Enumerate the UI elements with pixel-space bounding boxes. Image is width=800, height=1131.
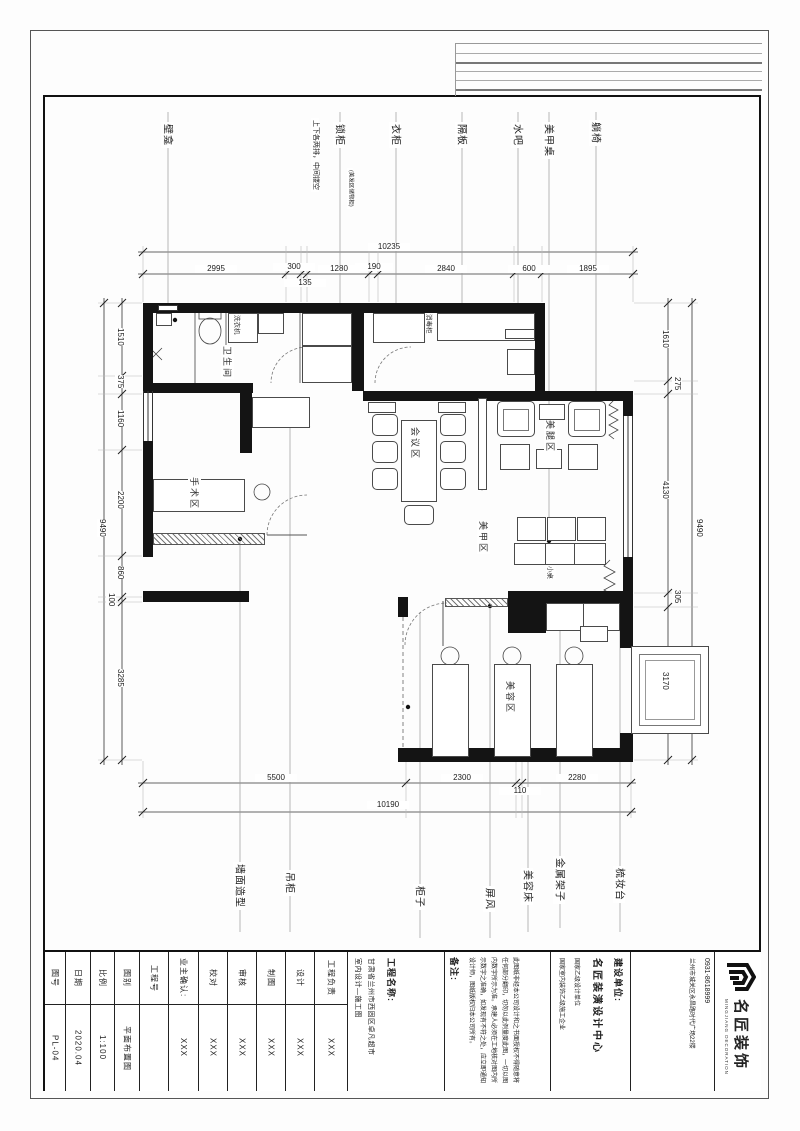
chair — [372, 414, 398, 436]
dim-top-seg: 135 — [284, 279, 326, 287]
screen-partition — [445, 598, 508, 607]
side-table — [539, 404, 565, 420]
wall — [508, 591, 546, 633]
field-label: 图号 — [50, 969, 61, 987]
window — [143, 391, 153, 441]
dim-bottom-overall: 10190 — [367, 801, 409, 809]
dim-right-overall: 9490 — [694, 519, 704, 537]
dim-top-seg: 2995 — [195, 265, 237, 273]
armchair-cushion — [503, 409, 529, 431]
logo-section: MINGJIANG DECORATION 名匠装饰 — [714, 952, 761, 1091]
field-label: 日期 — [73, 969, 84, 987]
window — [623, 416, 633, 557]
dim-left-seg: 1160 — [115, 410, 125, 427]
callout-locker-subnote: (美发区储物柜) — [347, 168, 353, 209]
personnel-draft: 制图 XXX — [256, 952, 285, 1091]
room-label-meeting: 会议区 — [409, 427, 422, 460]
project-name-label: 工程名称: — [385, 958, 398, 1085]
personnel-design: 设计 XXX — [285, 952, 314, 1091]
dim-right-seg: 275 — [672, 377, 682, 390]
logo-text-group: MINGJIANG DECORATION 名匠装饰 — [724, 999, 752, 1075]
owner-confirm: 业主确认: XXX — [168, 952, 198, 1091]
dim-left-seg: 100 — [106, 593, 116, 606]
fixture-label-small-table: 小桌 — [546, 566, 556, 579]
ottoman — [568, 444, 598, 470]
personnel-value: XXX — [296, 1038, 305, 1057]
callout-cabinet: 柜子 — [413, 884, 425, 910]
nail-station — [547, 517, 576, 541]
wall — [398, 597, 408, 617]
drawing-sheet: { "dims": { "top": {"overall": "10235", … — [0, 0, 800, 1131]
dim-left-seg: 860 — [115, 566, 125, 579]
personnel-label: 制图 — [266, 969, 277, 987]
fixture-label-sterilizer: 消毒柜 — [425, 314, 435, 334]
dim-left-seg: 3285 — [115, 669, 125, 687]
client-name: 名匠装潢设计中心 — [591, 958, 606, 1085]
callout-wall-feature: 墙面造型 — [233, 862, 245, 910]
dim-left-seg: 2200 — [115, 491, 125, 509]
chair — [372, 468, 398, 490]
client-section: 国家室内装饰乙级施工企业 国家乙级设计单位 名匠装潢设计中心 建设单位: — [550, 952, 630, 1091]
client-label: 建设单位: — [612, 958, 625, 1085]
personnel-label: 工程负责 — [326, 960, 337, 996]
locker-cabinet-upper — [302, 313, 352, 346]
callout-screen: 屏风 — [483, 886, 495, 912]
dim-bottom-seg: 2300 — [441, 774, 483, 782]
personnel-proofread: 校对 XXX — [198, 952, 227, 1091]
personnel-lead: 工程负责 XXX — [314, 952, 347, 1091]
dim-right-seg: 4130 — [660, 481, 670, 499]
personnel-label: 设计 — [295, 969, 306, 987]
personnel-value: XXX — [238, 1038, 247, 1057]
dim-bottom-seg: 2280 — [556, 774, 598, 782]
cabinet-drawer — [580, 626, 608, 642]
wall — [143, 303, 545, 313]
dim-right-seg: 1610 — [660, 330, 670, 348]
wall — [535, 303, 545, 391]
dim-top-seg: 600 — [508, 265, 550, 273]
locker-cabinet-lower — [302, 346, 352, 383]
callout-nail-table: 美甲桌 — [542, 122, 554, 159]
contact-section: 兰州市城关区永昌路时代广场22楼 0931-8618999 — [630, 952, 714, 1091]
wall — [620, 591, 633, 648]
field-project-no: 工程号 — [139, 952, 168, 1091]
dim-left-seg: 1510 — [115, 328, 125, 346]
nail-station — [577, 517, 606, 541]
field-label: 比例 — [97, 969, 108, 987]
room-label-surgery: 手术区 — [188, 477, 201, 510]
callout-niche: 壁龛 — [161, 122, 173, 148]
dim-right-seg: 305 — [672, 590, 682, 603]
door-leaves — [267, 535, 443, 646]
room-label-beauty: 美容区 — [504, 681, 517, 714]
dim-bottom-seg: 5500 — [255, 774, 297, 782]
dim-bottom-seg: 110 — [499, 787, 541, 795]
chair — [440, 468, 466, 490]
wardrobe-cabinet — [373, 313, 425, 343]
field-drawing-type: 图别 平面布置图 — [114, 952, 139, 1091]
callout-metal-rack: 金属架子 — [553, 856, 565, 904]
nail-station — [517, 517, 546, 541]
chair — [404, 505, 434, 525]
callout-lounge-chair: 躺椅 — [589, 120, 601, 146]
dim-left-overall: 9490 — [97, 519, 107, 537]
field-value: 2020.04 — [74, 1030, 83, 1066]
chair — [440, 441, 466, 463]
callout-beauty-bed: 美容床 — [521, 868, 533, 905]
kitchen-sink — [507, 349, 535, 375]
contact-address: 兰州市城关区永昌路时代广场22楼 — [688, 958, 697, 1085]
callout-shelf: 隔板 — [455, 122, 467, 148]
personnel-label: 校对 — [208, 969, 219, 987]
field-value: PL-04 — [51, 1035, 60, 1061]
callout-wardrobe: 衣柜 — [389, 122, 401, 148]
project-line1: 甘肃省兰州市西固区卓凡超市 — [366, 958, 376, 1085]
callout-dressing-table: 梳妆台 — [613, 866, 625, 903]
bay-window-inner — [645, 660, 695, 720]
dim-top-overall: 10235 — [368, 243, 410, 251]
company-logo-mark — [720, 958, 756, 996]
wall — [143, 383, 253, 393]
chair — [372, 441, 398, 463]
wall — [240, 383, 252, 453]
project-name-section: 室内设计—施工图 甘肃省兰州市西固区卓凡超市 工程名称: — [347, 952, 444, 1091]
field-label: 工程号 — [149, 965, 160, 992]
personnel-value: XXX — [267, 1038, 276, 1057]
armchair-cushion — [574, 409, 600, 431]
chair — [440, 414, 466, 436]
bath-sink-counter — [258, 313, 284, 334]
title-block: 图号 PL-04 日期 2020.04 比例 1:100 图别 平面布置图 工程… — [45, 950, 761, 1091]
field-value: 平面布置图 — [122, 1026, 133, 1071]
beauty-bed — [556, 664, 593, 757]
wall — [352, 303, 364, 391]
callout-hanging-cabinet: 吊柜 — [283, 870, 295, 896]
side-cabinet — [438, 402, 466, 413]
nail-table-counter — [478, 398, 487, 490]
beauty-bed — [432, 664, 469, 757]
client-cert1: 国家乙级设计单位 — [570, 958, 581, 1085]
hatched-partition — [153, 533, 265, 545]
bench-divider — [545, 544, 546, 564]
field-sheet-no: 图号 PL-04 — [45, 952, 65, 1091]
personnel-label: 审核 — [237, 969, 248, 987]
hanging-cabinet — [252, 397, 310, 428]
wall — [143, 591, 249, 602]
callout-water-bar: 水吧 — [511, 122, 523, 148]
dim-left-seg: 375 — [115, 375, 125, 388]
wall — [623, 401, 633, 416]
wall — [143, 441, 153, 557]
side-cabinet — [368, 402, 396, 413]
dim-top-seg: 1895 — [567, 265, 609, 273]
owner-confirm-value: XXX — [179, 1038, 188, 1057]
dim-right-seg: 3170 — [660, 672, 670, 690]
logo-name: 名匠装饰 — [731, 999, 752, 1075]
room-label-leg-area: 美腿区 — [544, 420, 557, 453]
dim-top-seg: 1280 — [318, 265, 360, 273]
client-cert2: 国家室内装饰乙级施工企业 — [555, 958, 566, 1085]
callout-locker-note: 上下各两排，中间镂空 — [311, 118, 319, 192]
wall-niche — [158, 305, 178, 311]
dim-top-seg: 190 — [355, 263, 393, 271]
notes-section: 备注: 此图纸非经本公司设计和之书面授权不得随意将任何部分翻印，切勿以此例量度此… — [444, 952, 550, 1091]
field-date: 日期 2020.04 — [65, 952, 90, 1091]
logo-caption: MINGJIANG DECORATION — [724, 999, 729, 1075]
nail-bench — [514, 543, 606, 565]
notes-label: 备注: — [448, 957, 461, 1086]
field-value: 1:100 — [98, 1035, 107, 1060]
personnel-value: XXX — [209, 1038, 218, 1057]
contact-phone: 0931-8618999 — [703, 958, 710, 1085]
room-label-bathroom: 卫生间 — [221, 346, 234, 379]
field-scale: 比例 1:100 — [90, 952, 114, 1091]
dim-top-seg: 2840 — [425, 265, 467, 273]
wall — [363, 391, 633, 401]
room-label-nail-area: 美甲区 — [477, 521, 490, 554]
notes-text: 此图纸非经本公司设计和之书面授权不得随意将任何部分翻印，切勿以此例量度此图，一切… — [465, 957, 520, 1085]
ottoman — [500, 444, 530, 470]
counter-cells — [505, 329, 535, 339]
dim-top-seg: 300 — [273, 263, 315, 271]
field-label: 图别 — [122, 969, 133, 987]
wall — [143, 303, 153, 391]
personnel-value: XXX — [327, 1038, 336, 1057]
fixture-label-washer: 洗衣机 — [233, 315, 243, 335]
bench-divider — [574, 544, 575, 564]
corner-sink — [156, 313, 172, 326]
personnel-review: 审核 XXX — [227, 952, 256, 1091]
project-line2: 室内设计—施工图 — [353, 958, 363, 1085]
callout-locker: 锁柜 — [333, 122, 345, 148]
owner-confirm-label: 业主确认: — [178, 958, 189, 997]
